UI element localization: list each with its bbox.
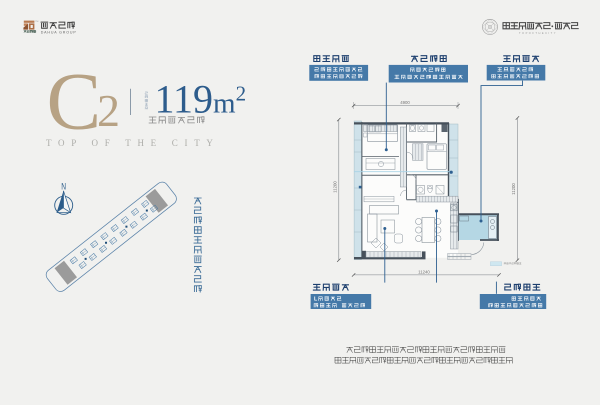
svg-text:TM: TM	[35, 21, 38, 23]
svg-text:11200: 11200	[511, 183, 516, 195]
svg-text:DAHUA GROUP: DAHUA GROUP	[41, 31, 77, 35]
svg-text:11200: 11200	[333, 181, 338, 193]
svg-text:2: 2	[97, 85, 120, 136]
svg-text:C: C	[47, 55, 102, 146]
svg-text:4900: 4900	[400, 100, 410, 105]
svg-text:TOP OF THE CITY: TOP OF THE CITY	[46, 138, 220, 148]
svg-text:11240: 11240	[418, 269, 430, 274]
svg-text:T O P O F T H E C I T Y: T O P O F T H E C I T Y	[519, 31, 556, 35]
